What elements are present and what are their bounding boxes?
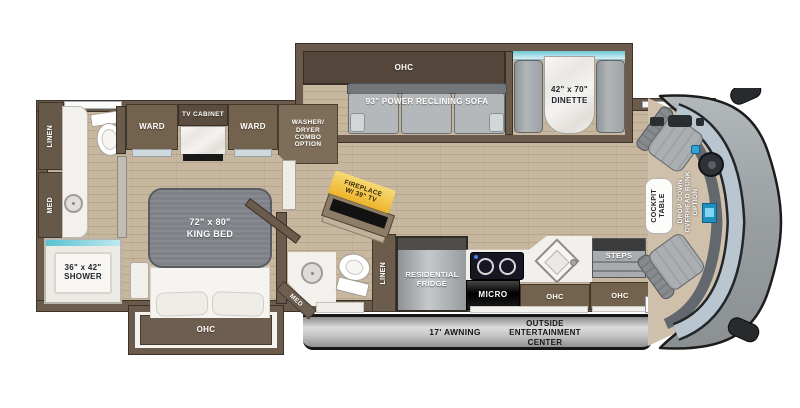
burner (477, 258, 494, 275)
dinette-name-label: DINETTE (551, 96, 587, 105)
bath-door-sill (316, 302, 364, 313)
kitchen-ohc-label: OHC (546, 293, 564, 302)
shower: 36" x 42" SHOWER (44, 238, 122, 304)
bedroom-pocket-door (282, 160, 296, 210)
burner (499, 258, 516, 275)
corner-sink-drain (311, 272, 314, 275)
wardrobe-left-mirror (132, 149, 172, 157)
linen-mid-label: LINEN (380, 262, 388, 285)
shower-glass (46, 240, 120, 246)
side-mirror-top (728, 88, 763, 107)
cooktop (470, 252, 524, 280)
micro-label: MICRO (478, 290, 507, 299)
bath-wall-stub (116, 106, 126, 154)
king-bed-label: KING BED (187, 229, 233, 239)
sink-basin (544, 250, 569, 275)
ward-left-label: WARD (139, 122, 165, 131)
dinette-size-label: 42" x 70" (551, 85, 588, 94)
shower-label: 36" x 42" SHOWER (46, 260, 120, 284)
dinette-table: 42" x 70" DINETTE (544, 56, 595, 134)
dinette-bench-left (514, 60, 543, 133)
linen-cabinet-front: LINEN (38, 102, 64, 170)
tv-cabinet-band: TV CABINET (178, 104, 228, 126)
sofa-label: 93" POWER RECLINING SOFA (347, 97, 507, 106)
tv-cabinet-counter (180, 126, 226, 155)
bath-vanity (62, 106, 88, 238)
linen-cabinet-mid: LINEN (372, 234, 396, 312)
pillow (156, 291, 209, 317)
top-slideout: OHC 93" POWER RECLINING SOFA 42" x 70" D… (296, 44, 632, 142)
awning-bar: 17' AWNING OUTSIDE ENTERTAINMENT CENTER (303, 314, 652, 350)
steering-hub (708, 161, 716, 169)
rv-floorplan: OHC 93" POWER RECLINING SOFA 42" x 70" D… (0, 0, 800, 408)
dash-vent (650, 117, 664, 126)
king-bed-size: 72" x 80" (189, 217, 230, 227)
cooktop-indicator (474, 255, 478, 259)
kitchen-sill (470, 306, 588, 313)
outside-entertainment-label: OUTSIDE ENTERTAINMENT CENTER (495, 318, 595, 348)
entry-ohc-label: OHC (611, 292, 629, 301)
tv-cabinet-label: TV CABINET (182, 111, 224, 118)
pillow (212, 291, 265, 317)
bed-ohc-label: OHC (141, 316, 271, 344)
sink-faucet (570, 259, 577, 266)
bed-overhead-cabinet: OHC (140, 315, 272, 345)
cockpit-table-label: COCKPIT TABLE (651, 189, 667, 223)
tv-screen (183, 154, 223, 161)
sofa-ohc-label: OHC (304, 52, 504, 83)
console-screen-glow (705, 208, 714, 217)
dash-vent (696, 118, 704, 126)
vanity-sink-drain (72, 202, 75, 205)
overhead-bunk-label: DROP-DOWN OVERHEAD BUNK OPTION (673, 146, 703, 258)
fridge-label: RESIDENTIAL FRIDGE (398, 252, 466, 308)
med-front-label: MED (47, 197, 55, 213)
wardrobe-right: WARD (228, 104, 278, 150)
fridge: RESIDENTIAL FRIDGE (396, 236, 468, 312)
med-cabinet-front: MED (38, 172, 64, 238)
sofa-armrest (350, 113, 365, 132)
wardrobe-right-mirror (234, 149, 272, 157)
nightstand (130, 262, 149, 299)
linen-front-label: LINEN (47, 125, 55, 148)
bunk-option-text: DROP-DOWN OVERHEAD BUNK OPTION (677, 171, 699, 232)
bath-door (117, 156, 127, 238)
fridge-top-band (398, 238, 466, 250)
sofa-armrest (489, 113, 504, 132)
console-screen (702, 203, 717, 223)
cockpit-table: COCKPIT TABLE (645, 178, 673, 234)
toilet-tank (335, 276, 369, 297)
dash-vent (668, 115, 692, 127)
ward-right-label: WARD (240, 122, 266, 131)
dinette-bench-right (596, 60, 625, 133)
wardrobe-left: WARD (126, 104, 178, 150)
sofa-overhead-cabinet: OHC (303, 51, 505, 85)
washer-dryer-cabinet: WASHER/ DRYER COMBO OPTION (278, 104, 338, 164)
